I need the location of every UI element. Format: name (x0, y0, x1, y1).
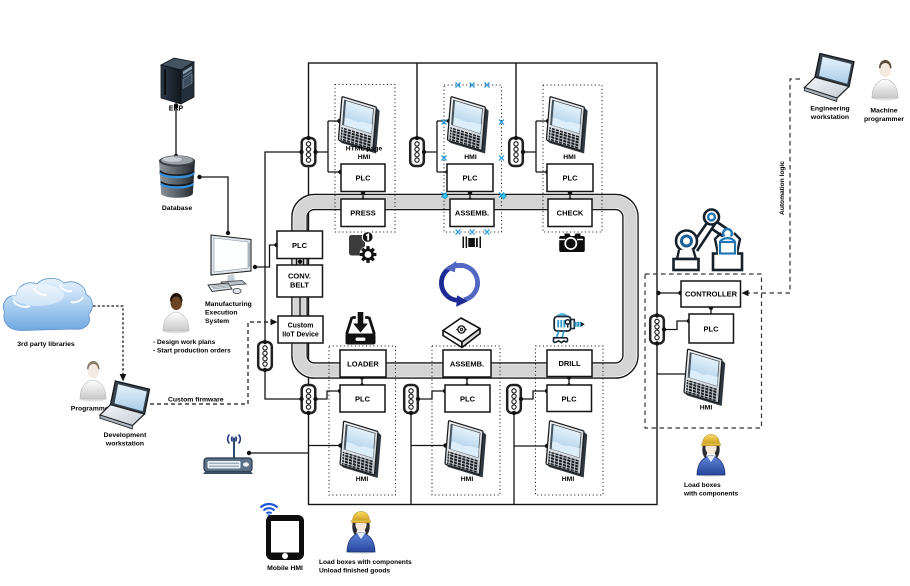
svg-text:HMI: HMI (356, 476, 369, 483)
svg-text:Load boxes with components: Load boxes with components (319, 559, 412, 566)
svg-text:Unload finished goods: Unload finished goods (319, 568, 390, 575)
svg-text:Manufacturing: Manufacturing (205, 301, 252, 308)
svg-text:PRESS: PRESS (350, 209, 375, 218)
svg-text:Custom: Custom (288, 323, 314, 330)
svg-text:Engineering: Engineering (810, 106, 849, 113)
svg-text:PLC: PLC (463, 174, 479, 183)
svg-text:Automation logic: Automation logic (779, 161, 786, 215)
svg-text:HMI: HMI (563, 154, 576, 161)
svg-text:3rd party libraries: 3rd party libraries (17, 341, 75, 348)
svg-text:Load boxes: Load boxes (684, 482, 721, 489)
svg-text:HMI: HMI (562, 476, 575, 483)
svg-text:ASSEMB.: ASSEMB. (450, 360, 484, 369)
svg-text:PLC: PLC (460, 395, 476, 404)
svg-text:HTML page: HTML page (346, 146, 383, 153)
svg-text:DRILL: DRILL (558, 359, 580, 368)
svg-text:HMI: HMI (700, 405, 713, 412)
svg-text:PLC: PLC (355, 395, 371, 404)
svg-text:LOADER: LOADER (347, 360, 379, 369)
svg-text:BELT: BELT (290, 281, 309, 290)
svg-text:PLC: PLC (356, 174, 372, 183)
svg-text:CHECK: CHECK (557, 209, 584, 218)
svg-text:Machine: Machine (870, 108, 897, 115)
svg-text:IIoT Device: IIoT Device (282, 332, 319, 339)
svg-text:ASSEMB.: ASSEMB. (455, 209, 489, 218)
svg-text:HMI: HMI (461, 476, 474, 483)
svg-text:Execution: Execution (205, 310, 237, 317)
svg-text:ERP: ERP (169, 106, 184, 113)
svg-text:programmer: programmer (864, 116, 904, 123)
svg-text:HMI: HMI (464, 154, 477, 161)
svg-text:CONTROLLER: CONTROLLER (685, 290, 738, 299)
svg-text:System: System (205, 318, 229, 325)
svg-text:PLC: PLC (704, 325, 720, 334)
svg-text:PLC: PLC (563, 174, 579, 183)
svg-text:workstation: workstation (810, 114, 849, 121)
svg-text:Development: Development (104, 432, 147, 439)
svg-text:PLC: PLC (292, 241, 308, 250)
svg-text:CONV.: CONV. (288, 272, 311, 281)
svg-text:PLC: PLC (562, 395, 578, 404)
svg-text:with components: with components (683, 491, 739, 498)
svg-text:workstation: workstation (105, 441, 144, 448)
svg-text:- Design work plans: - Design work plans (153, 339, 216, 346)
svg-text:Mobile HMI: Mobile HMI (267, 565, 303, 572)
svg-text:- Start production orders: - Start production orders (153, 348, 231, 355)
svg-text:HMI: HMI (358, 154, 371, 161)
svg-text:Custom firmware: Custom firmware (168, 397, 224, 404)
svg-text:Database: Database (162, 205, 192, 212)
